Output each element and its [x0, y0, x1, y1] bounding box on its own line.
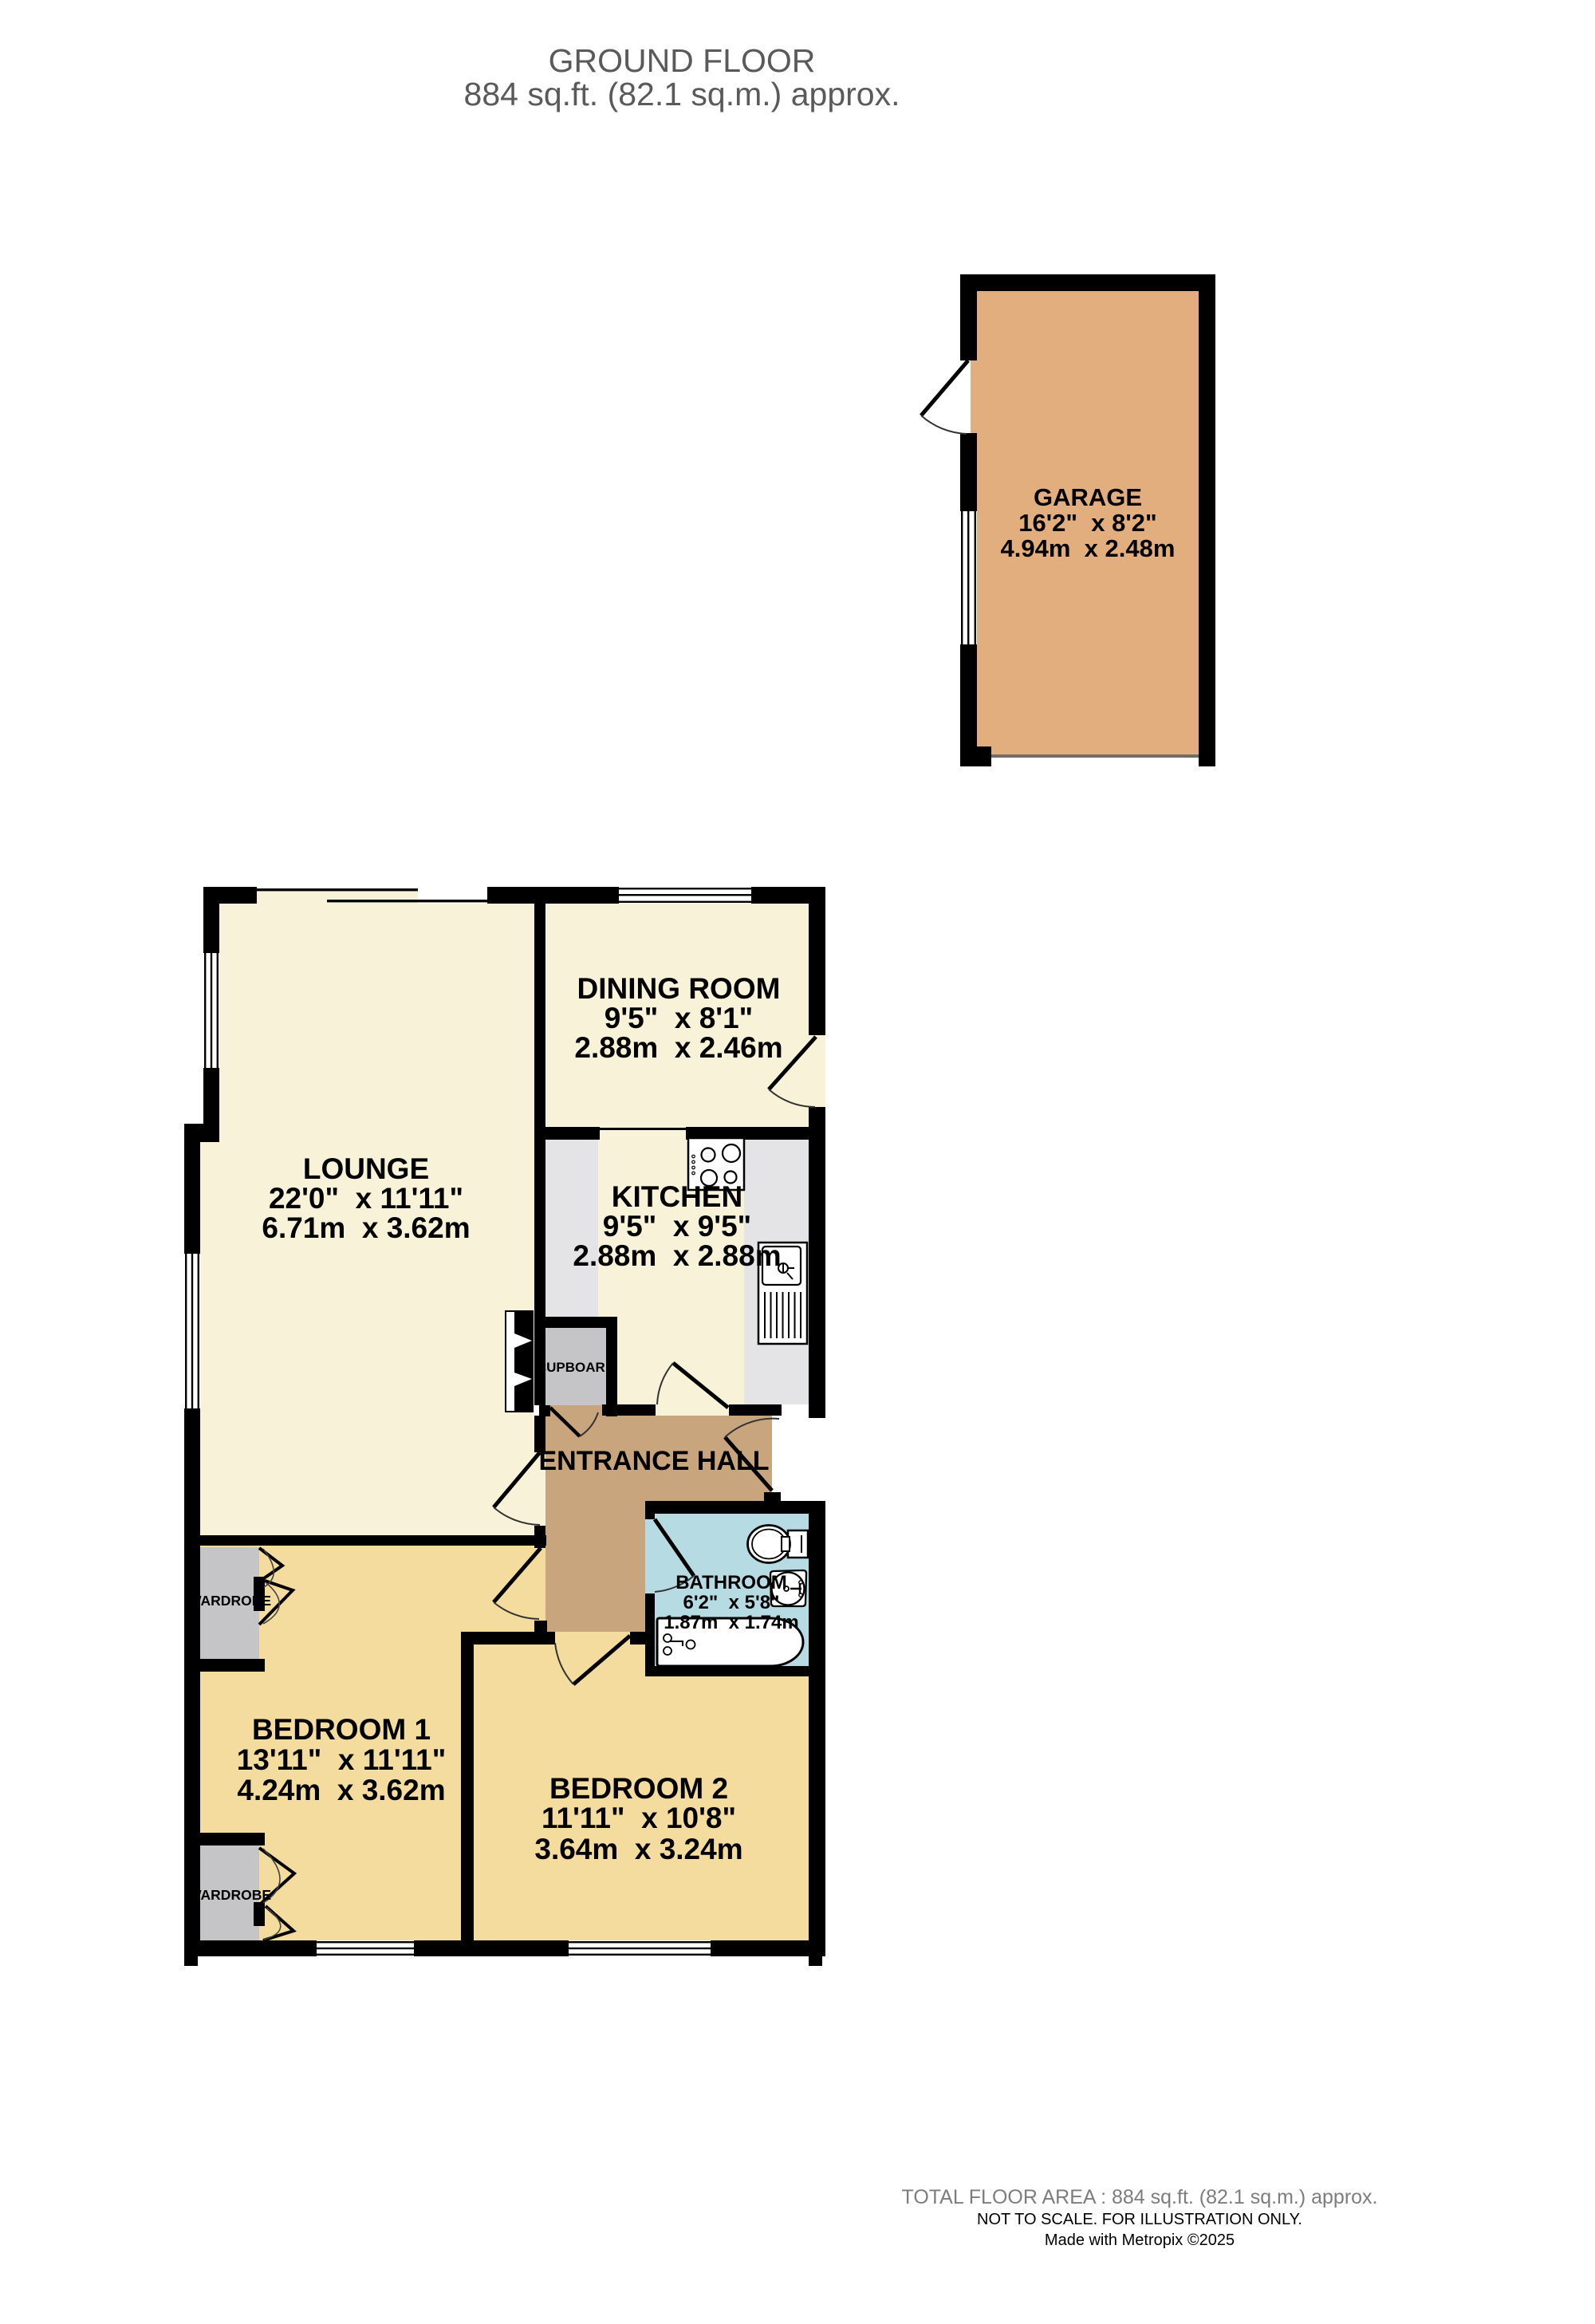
svg-text:Made with Metropix ©2025: Made with Metropix ©2025 [1045, 2231, 1235, 2249]
svg-text:6.71m x 3.62m: 6.71m x 3.62m [262, 1211, 470, 1244]
svg-text:884 sq.ft. (82.1 sq.m.) approx: 884 sq.ft. (82.1 sq.m.) approx. [464, 76, 900, 112]
svg-text:11'11" x 10'8": 11'11" x 10'8" [542, 1802, 736, 1834]
svg-text:BATHROOM: BATHROOM [675, 1572, 787, 1593]
svg-text:4.24m x 3.62m: 4.24m x 3.62m [237, 1774, 445, 1806]
svg-text:13'11" x 11'11": 13'11" x 11'11" [237, 1743, 447, 1776]
svg-text:GROUND FLOOR: GROUND FLOOR [549, 42, 816, 79]
svg-text:ENTRANCE HALL: ENTRANCE HALL [539, 1446, 770, 1476]
svg-text:KITCHEN: KITCHEN [612, 1180, 742, 1213]
svg-text:WARDROBE: WARDROBE [188, 1887, 271, 1903]
svg-text:9'5" x 9'5": 9'5" x 9'5" [603, 1210, 751, 1243]
svg-text:NOT TO SCALE. FOR ILLUSTRATION: NOT TO SCALE. FOR ILLUSTRATION ONLY. [977, 2211, 1302, 2228]
svg-text:6'2" x 5'8": 6'2" x 5'8" [683, 1592, 780, 1613]
svg-text:22'0" x 11'11": 22'0" x 11'11" [269, 1182, 463, 1215]
svg-text:BEDROOM 1: BEDROOM 1 [252, 1713, 431, 1746]
svg-text:TOTAL FLOOR AREA : 884 sq.ft.: TOTAL FLOOR AREA : 884 sq.ft. (82.1 sq.m… [902, 2186, 1378, 2208]
svg-text:GARAGE: GARAGE [1034, 483, 1142, 511]
svg-text:WARDROBE: WARDROBE [188, 1593, 271, 1609]
svg-text:DINING ROOM: DINING ROOM [577, 972, 781, 1005]
svg-text:9'5" x 8'1": 9'5" x 8'1" [605, 1002, 753, 1034]
svg-text:16'2" x 8'2": 16'2" x 8'2" [1018, 509, 1156, 537]
svg-text:4.94m x 2.48m: 4.94m x 2.48m [1001, 534, 1176, 562]
svg-text:2.88m x 2.46m: 2.88m x 2.46m [574, 1031, 782, 1064]
svg-text:LOUNGE: LOUNGE [303, 1152, 429, 1185]
svg-text:1.87m x 1.74m: 1.87m x 1.74m [664, 1612, 798, 1633]
svg-text:3.64m x 3.24m: 3.64m x 3.24m [534, 1833, 742, 1865]
svg-text:CUPBOARD: CUPBOARD [537, 1360, 615, 1375]
svg-text:BEDROOM 2: BEDROOM 2 [549, 1772, 728, 1805]
svg-text:2.88m x 2.88m: 2.88m x 2.88m [573, 1239, 781, 1272]
